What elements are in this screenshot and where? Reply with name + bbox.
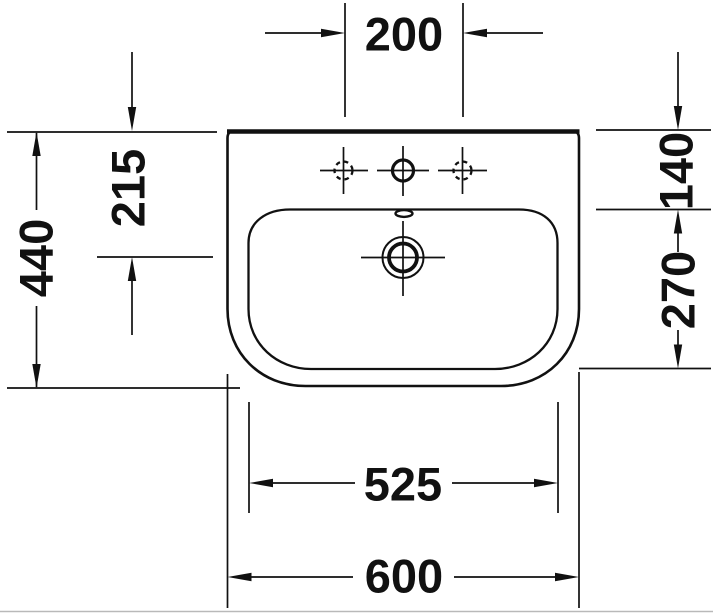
technical-drawing-page: 200 440 215 140 bbox=[0, 0, 713, 613]
tap-hole-right-crosshair bbox=[438, 147, 487, 194]
arrowhead-down-icon bbox=[674, 345, 682, 369]
dim-label-back-to-drain: 215 bbox=[102, 149, 155, 227]
dim-label-overall-depth: 440 bbox=[10, 219, 63, 297]
arrowhead-down-icon bbox=[674, 106, 682, 130]
dim-label-overall-width: 600 bbox=[365, 550, 443, 603]
tap-hole-left-crosshair bbox=[320, 147, 368, 194]
arrowhead-up-icon bbox=[128, 257, 136, 281]
dimension-bowl-width: 525 bbox=[249, 402, 558, 513]
dim-label-bowl-depth: 270 bbox=[652, 251, 705, 329]
tap-hole-right-optional bbox=[438, 147, 487, 194]
arrowhead-right-icon bbox=[555, 573, 579, 581]
dimension-tap-hole-spacing: 200 bbox=[265, 3, 543, 117]
dim-label-tap-hole-spacing: 200 bbox=[365, 8, 443, 61]
arrowhead-right-icon bbox=[534, 479, 558, 487]
drain-crosshair bbox=[361, 221, 445, 296]
arrowhead-up-icon bbox=[32, 132, 40, 156]
arrowhead-left-icon bbox=[228, 573, 252, 581]
drain-hole bbox=[361, 221, 445, 296]
tap-hole-left-optional bbox=[320, 147, 368, 194]
arrowhead-up-icon bbox=[674, 210, 682, 234]
tap-hole-center-crosshair bbox=[377, 146, 429, 196]
arrowhead-down-icon bbox=[32, 364, 40, 388]
overflow-slot bbox=[396, 210, 413, 217]
dimension-bowl-depth: 270 bbox=[579, 210, 711, 369]
dimension-back-to-bowl: 140 bbox=[596, 52, 711, 210]
arrowhead-left-icon bbox=[463, 29, 487, 37]
dimension-back-to-drain: 215 bbox=[97, 52, 213, 335]
arrowhead-right-icon bbox=[321, 29, 345, 37]
dim-label-bowl-width: 525 bbox=[364, 458, 442, 511]
tap-hole-group bbox=[320, 146, 487, 196]
arrowhead-down-icon bbox=[128, 107, 136, 131]
tap-hole-center bbox=[377, 146, 429, 196]
arrowhead-left-icon bbox=[249, 479, 273, 487]
dim-label-back-to-bowl: 140 bbox=[650, 132, 703, 210]
washbasin-dimension-drawing: 200 440 215 140 bbox=[0, 0, 713, 613]
